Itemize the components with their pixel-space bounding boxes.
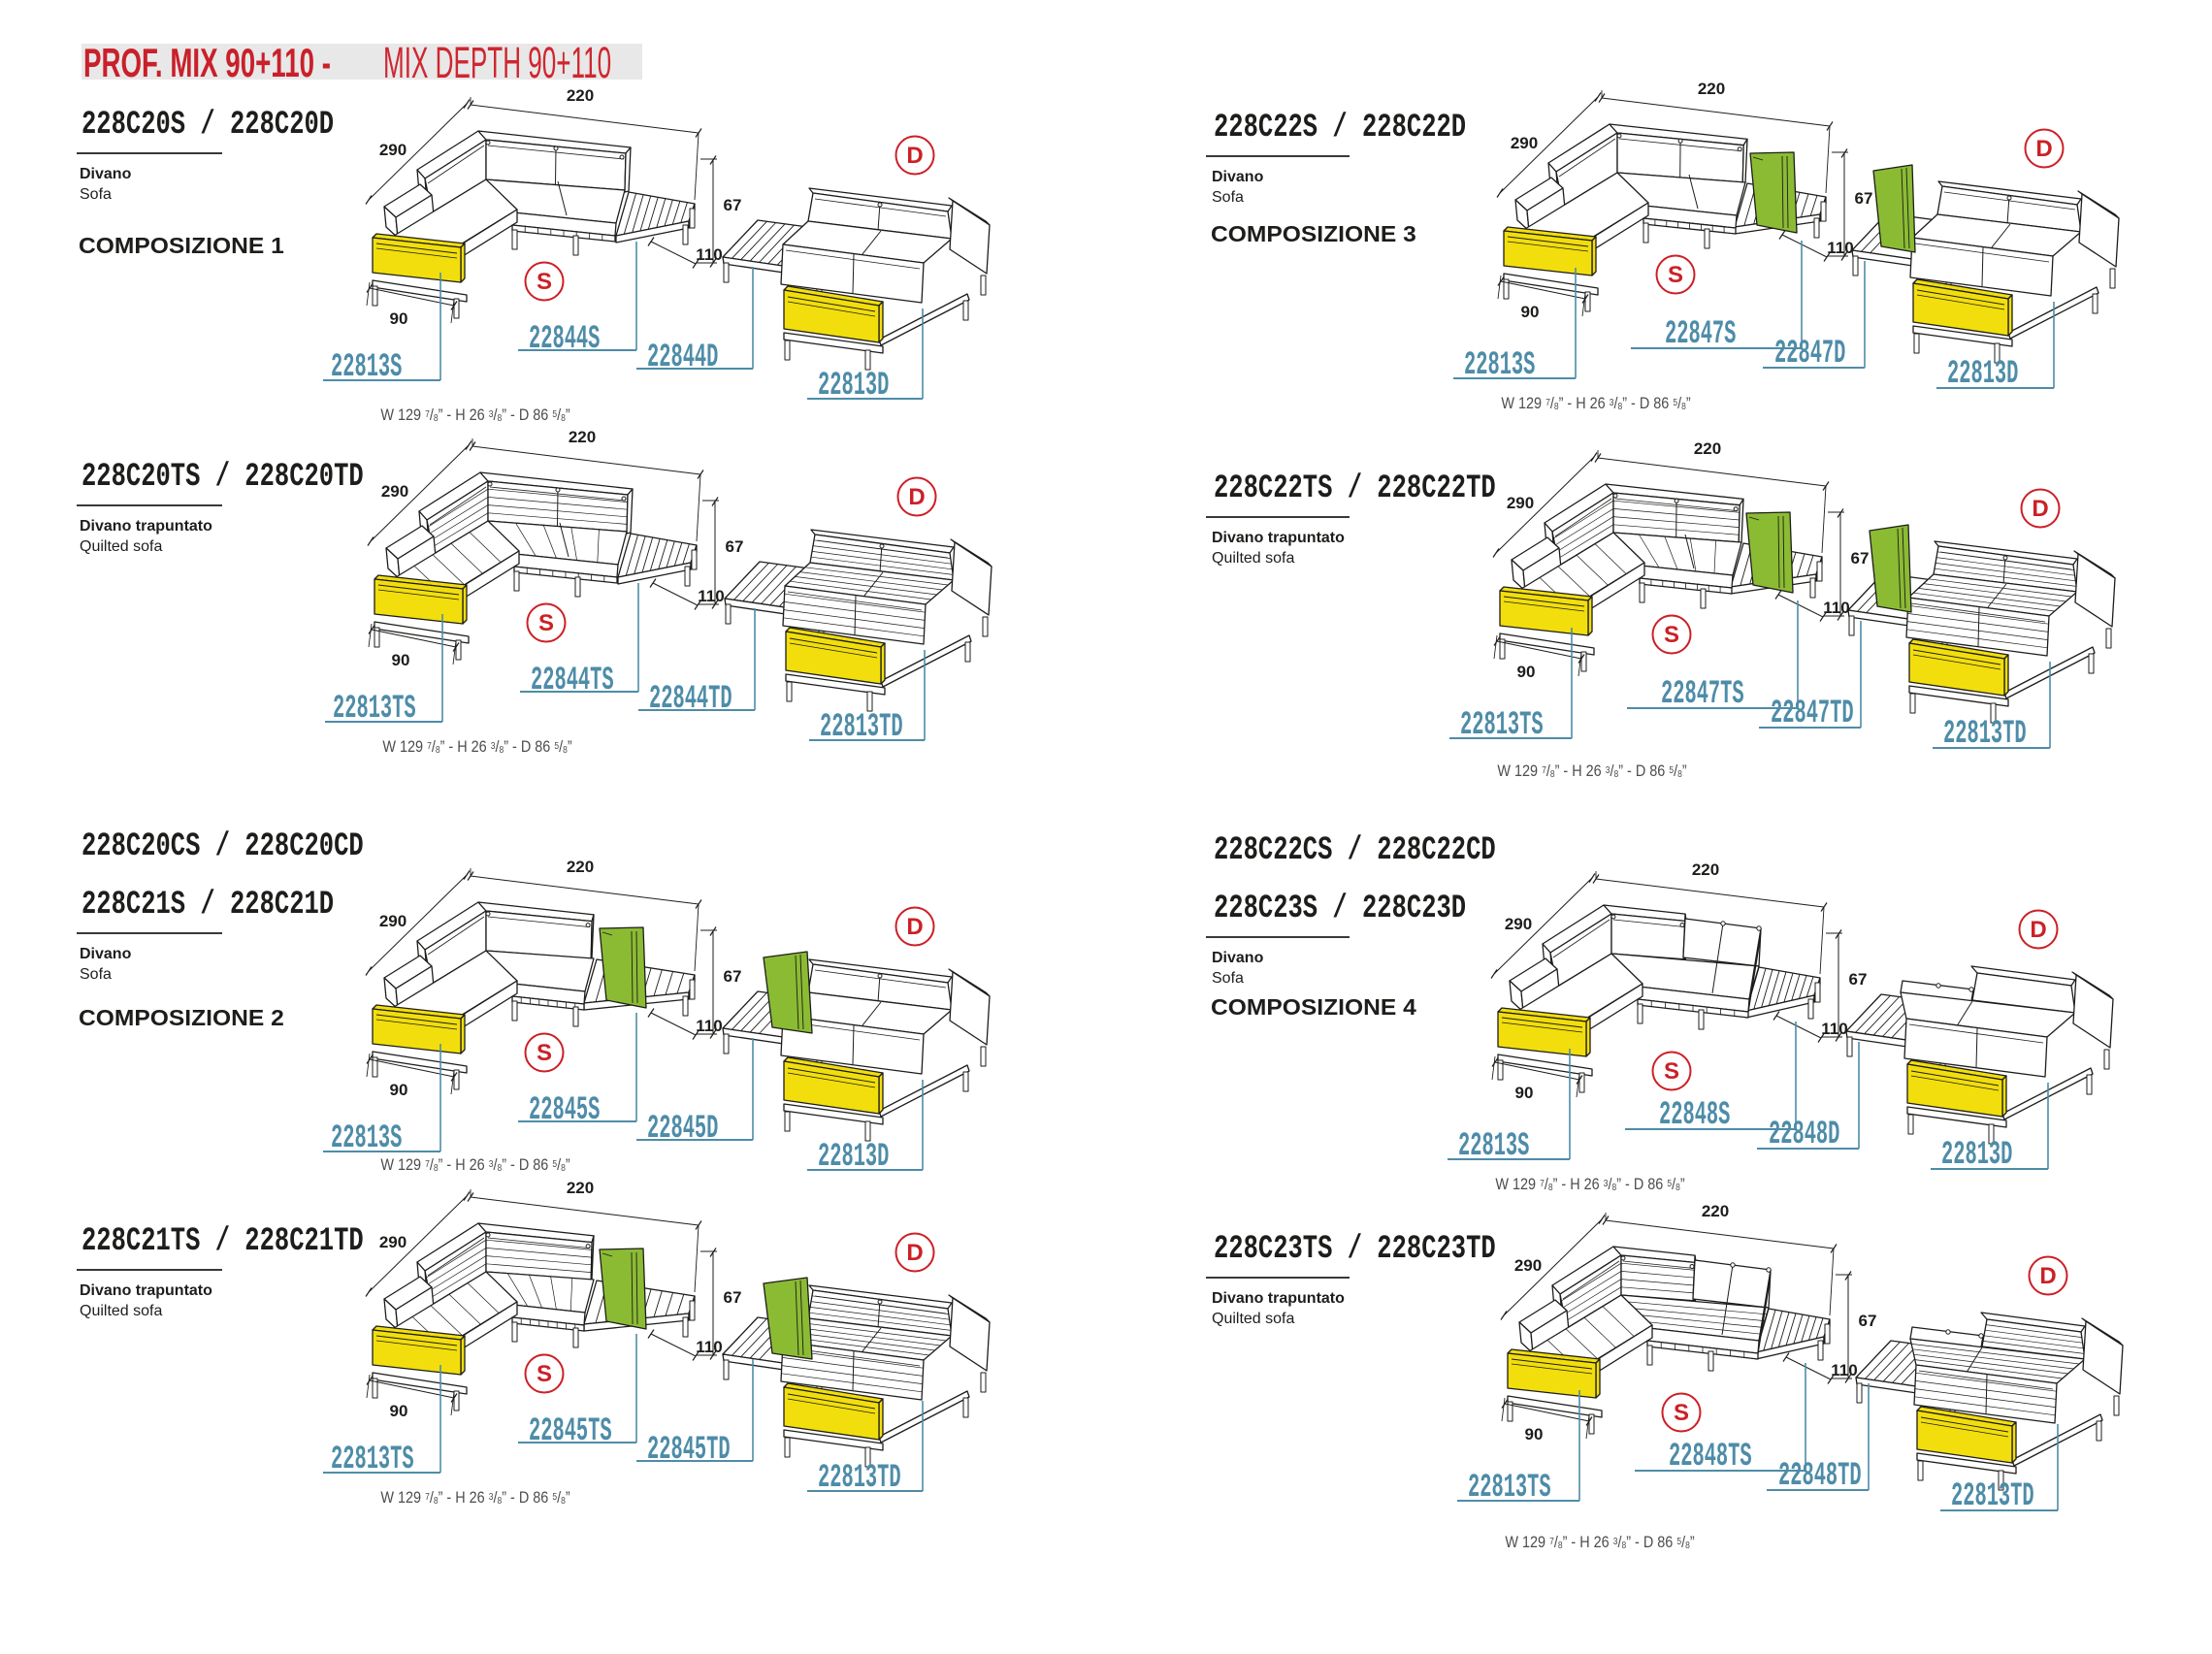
svg-text:Quilted sofa: Quilted sofa [80, 538, 162, 555]
svg-text:90: 90 [390, 1402, 408, 1420]
svg-text:COMPOSIZIONE 3: COMPOSIZIONE 3 [1211, 222, 1416, 247]
svg-text:COMPOSIZIONE 1: COMPOSIZIONE 1 [79, 234, 284, 259]
svg-text:Quilted sofa: Quilted sofa [80, 1303, 162, 1319]
svg-text:67: 67 [1849, 970, 1868, 989]
svg-text:S: S [1668, 262, 1683, 288]
svg-text:Divano trapuntato: Divano trapuntato [80, 1282, 212, 1299]
svg-text:90: 90 [1521, 303, 1540, 321]
svg-text:67: 67 [1859, 1312, 1877, 1330]
svg-text:228C23TS / 228C23TD: 228C23TS / 228C23TD [1214, 1231, 1496, 1268]
svg-text:Divano: Divano [80, 166, 132, 182]
svg-text:W 129 7/8” - H 26 3/8” - D 86: W 129 7/8” - H 26 3/8” - D 86 5/8” [1497, 762, 1686, 780]
svg-text:22845S: 22845S [529, 1092, 600, 1129]
svg-text:220: 220 [1702, 1202, 1729, 1220]
svg-text:110: 110 [696, 1017, 722, 1035]
svg-text:Divano: Divano [1212, 950, 1264, 966]
svg-text:220: 220 [1694, 439, 1721, 458]
svg-text:90: 90 [1517, 663, 1536, 681]
svg-text:110: 110 [1831, 1361, 1857, 1379]
svg-text:Quilted sofa: Quilted sofa [1212, 1311, 1294, 1327]
svg-text:W 129 7/8” - H 26 3/8” - D 86: W 129 7/8” - H 26 3/8” - D 86 5/8” [380, 1489, 569, 1507]
svg-text:220: 220 [1698, 80, 1725, 98]
svg-text:22845TS: 22845TS [529, 1413, 612, 1450]
svg-text:228C21TS / 228C21TD: 228C21TS / 228C21TD [81, 1223, 364, 1260]
svg-text:Divano: Divano [1212, 169, 1264, 185]
svg-text:220: 220 [567, 858, 594, 876]
svg-text:220: 220 [1692, 860, 1719, 879]
svg-text:290: 290 [1507, 494, 1534, 512]
svg-text:110: 110 [1821, 1020, 1847, 1038]
svg-text:S: S [538, 610, 554, 636]
svg-text:67: 67 [724, 967, 742, 986]
svg-text:D: D [2030, 917, 2046, 943]
svg-text:D: D [906, 1240, 923, 1266]
svg-text:COMPOSIZIONE 4: COMPOSIZIONE 4 [1211, 995, 1417, 1021]
svg-text:110: 110 [696, 245, 722, 264]
svg-text:S: S [537, 1040, 552, 1066]
svg-text:290: 290 [1505, 915, 1532, 933]
svg-text:22844S: 22844S [529, 321, 600, 358]
svg-text:22844TS: 22844TS [531, 663, 614, 699]
svg-text:228C21S / 228C21D: 228C21S / 228C21D [81, 887, 334, 924]
svg-text:S: S [537, 1361, 552, 1387]
svg-text:290: 290 [379, 1233, 407, 1251]
svg-text:290: 290 [379, 912, 407, 930]
svg-text:110: 110 [698, 587, 724, 605]
svg-text:90: 90 [390, 1081, 408, 1099]
svg-text:228C20CS / 228C20CD: 228C20CS / 228C20CD [81, 828, 364, 865]
svg-text:COMPOSIZIONE 2: COMPOSIZIONE 2 [79, 1006, 284, 1031]
svg-text:22845TD: 22845TD [647, 1432, 731, 1469]
svg-text:110: 110 [1827, 239, 1853, 257]
svg-text:228C20S / 228C20D: 228C20S / 228C20D [81, 107, 334, 144]
svg-text:67: 67 [724, 196, 742, 214]
svg-text:D: D [906, 143, 923, 169]
svg-text:S: S [1664, 1058, 1679, 1085]
svg-text:220: 220 [569, 428, 596, 446]
svg-text:22844TD: 22844TD [649, 681, 732, 718]
svg-text:Sofa: Sofa [80, 966, 112, 983]
svg-text:22845D: 22845D [647, 1111, 718, 1148]
svg-text:W 129 7/8” - H 26 3/8” - D 86: W 129 7/8” - H 26 3/8” - D 86 5/8” [380, 406, 569, 424]
svg-text:W 129 7/8” - H 26 3/8” - D 86: W 129 7/8” - H 26 3/8” - D 86 5/8” [380, 1156, 569, 1174]
svg-text:110: 110 [696, 1338, 722, 1356]
svg-text:228C20TS / 228C20TD: 228C20TS / 228C20TD [81, 459, 364, 496]
svg-text:90: 90 [390, 309, 408, 328]
svg-text:290: 290 [379, 141, 407, 159]
svg-text:W 129 7/8” - H 26 3/8” - D 86: W 129 7/8” - H 26 3/8” - D 86 5/8” [1501, 395, 1690, 412]
svg-text:D: D [2039, 1263, 2056, 1289]
svg-text:W 129 7/8” - H 26 3/8” - D 86: W 129 7/8” - H 26 3/8” - D 86 5/8” [382, 738, 571, 756]
svg-text:90: 90 [1525, 1425, 1544, 1443]
svg-text:110: 110 [1823, 599, 1849, 617]
svg-text:290: 290 [381, 482, 408, 501]
svg-text:67: 67 [1855, 189, 1873, 208]
svg-text:290: 290 [1514, 1256, 1542, 1275]
svg-text:220: 220 [567, 86, 594, 105]
svg-text:67: 67 [1851, 549, 1870, 568]
svg-text:67: 67 [726, 537, 744, 556]
svg-text:228C22S / 228C22D: 228C22S / 228C22D [1214, 110, 1466, 146]
svg-text:Divano: Divano [80, 946, 132, 962]
svg-text:S: S [1664, 622, 1679, 648]
svg-text:228C22TS / 228C22TD: 228C22TS / 228C22TD [1214, 470, 1496, 507]
svg-text:22844D: 22844D [647, 340, 718, 376]
svg-text:W 129 7/8” - H 26 3/8” - D 86: W 129 7/8” - H 26 3/8” - D 86 5/8” [1495, 1176, 1684, 1193]
svg-text:220: 220 [567, 1179, 594, 1197]
svg-text:D: D [2032, 496, 2048, 522]
svg-text:D: D [908, 484, 925, 510]
svg-text:W 129 7/8” - H 26 3/8” - D 86: W 129 7/8” - H 26 3/8” - D 86 5/8” [1505, 1534, 1694, 1551]
svg-text:S: S [1674, 1400, 1689, 1426]
svg-text:228C22CS / 228C22CD: 228C22CS / 228C22CD [1214, 832, 1496, 869]
svg-text:Sofa: Sofa [1212, 189, 1244, 206]
svg-text:D: D [2035, 136, 2052, 162]
svg-text:D: D [906, 914, 923, 940]
svg-text:Divano trapuntato: Divano trapuntato [80, 518, 212, 535]
svg-text:S: S [537, 269, 552, 295]
svg-text:PROF. MIX 90+110 -: PROF. MIX 90+110 - [83, 40, 331, 85]
svg-text:67: 67 [724, 1288, 742, 1307]
svg-text:90: 90 [1515, 1084, 1534, 1102]
svg-text:228C23S / 228C23D: 228C23S / 228C23D [1214, 891, 1466, 927]
svg-text:Quilted sofa: Quilted sofa [1212, 550, 1294, 567]
svg-text:290: 290 [1511, 134, 1538, 152]
svg-text:Sofa: Sofa [80, 186, 112, 203]
svg-text:Divano trapuntato: Divano trapuntato [1212, 1290, 1345, 1307]
svg-text:Sofa: Sofa [1212, 970, 1244, 987]
svg-text:MIX DEPTH 90+110: MIX DEPTH 90+110 [383, 39, 611, 87]
svg-text:90: 90 [392, 651, 410, 669]
svg-text:Divano trapuntato: Divano trapuntato [1212, 530, 1345, 546]
